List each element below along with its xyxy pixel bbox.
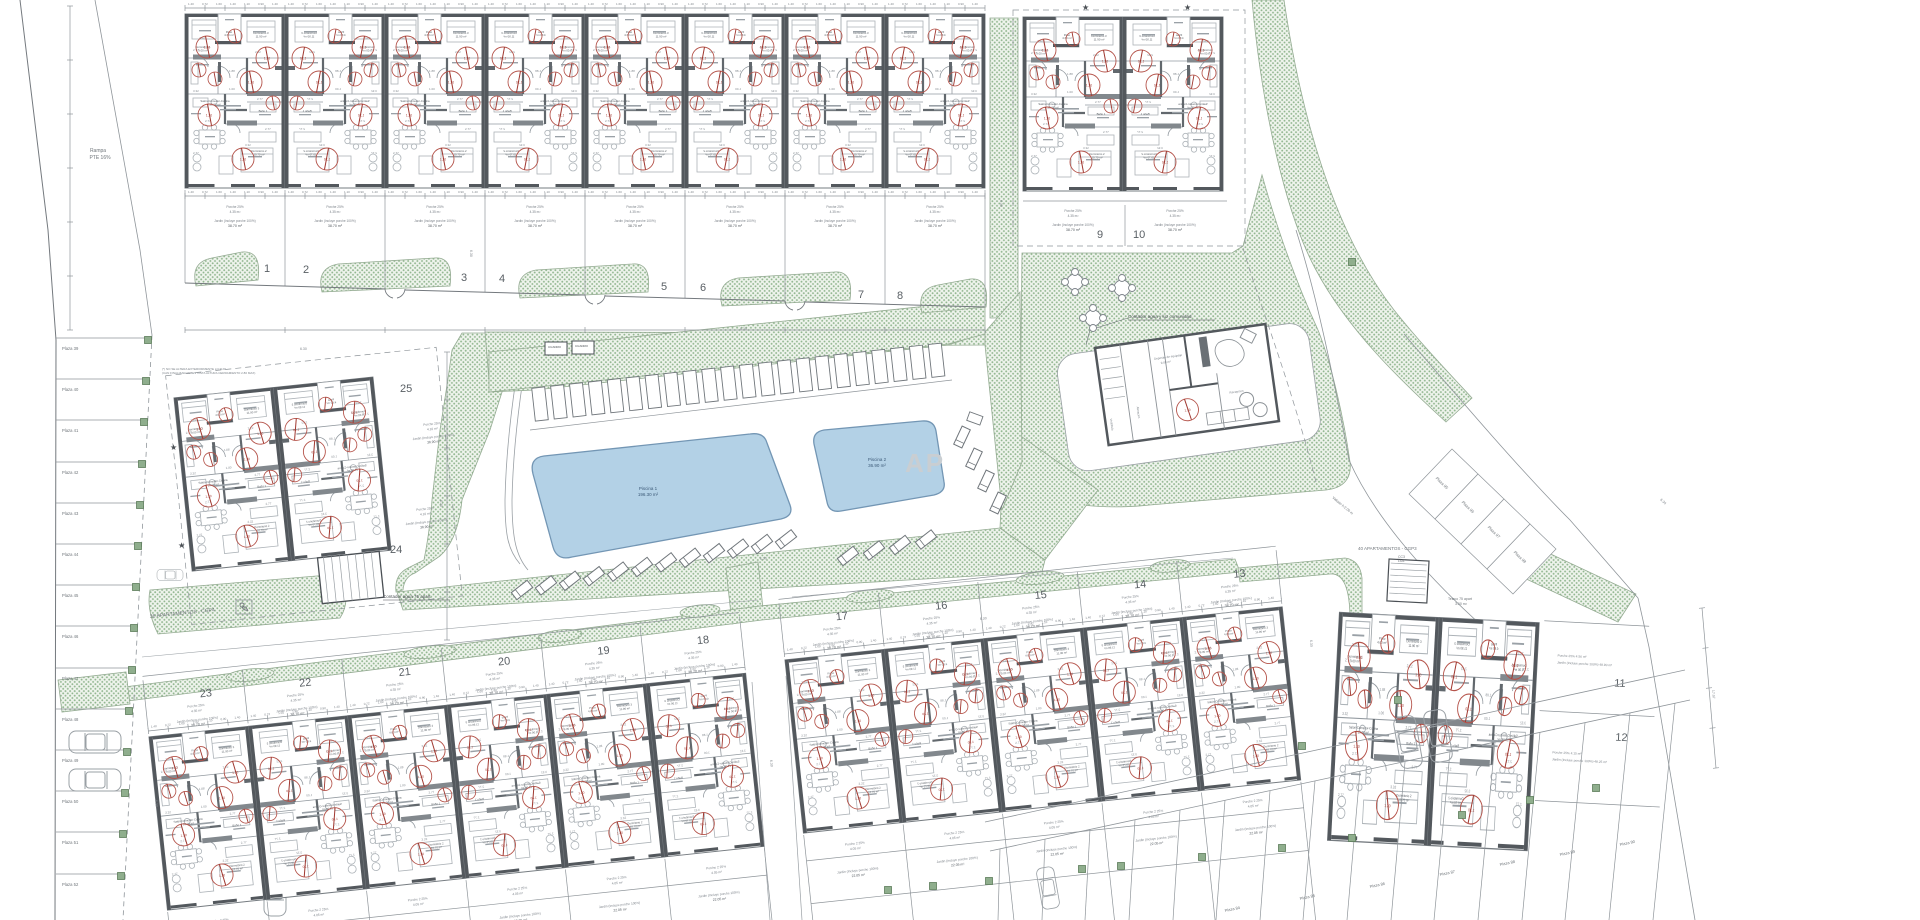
svg-text:CUADRO: CUADRO (575, 344, 589, 348)
svg-text:4: 4 (499, 273, 505, 285)
svg-text:40 APARTAMENTOS - CGP3: 40 APARTAMENTOS - CGP3 (1358, 546, 1417, 551)
svg-text:Plaza 52: Plaza 52 (62, 882, 79, 887)
svg-text:Plaza 50: Plaza 50 (62, 799, 79, 804)
svg-text:CUADRO: CUADRO (548, 345, 562, 349)
svg-text:Piscina 2: Piscina 2 (868, 457, 887, 462)
svg-text:3: 3 (461, 272, 467, 284)
svg-text:10: 10 (1133, 229, 1145, 241)
svg-text:★: ★ (178, 541, 185, 550)
svg-text:Plaza 47: Plaza 47 (62, 676, 79, 681)
svg-text:15: 15 (1034, 589, 1047, 602)
svg-text:6.30: 6.30 (769, 760, 774, 767)
svg-text:6.30: 6.30 (439, 500, 443, 507)
svg-text:6.30: 6.30 (154, 800, 159, 807)
svg-text:6.30: 6.30 (300, 347, 307, 351)
svg-text:2: 2 (303, 264, 309, 276)
svg-text:Plaza 43: Plaza 43 (62, 511, 79, 516)
svg-text:Plaza 46: Plaza 46 (62, 634, 79, 639)
svg-text:7: 7 (858, 289, 864, 301)
svg-text:24: 24 (390, 544, 402, 556)
svg-text:8: 8 (897, 290, 903, 302)
svg-text:22: 22 (299, 676, 312, 689)
svg-text:(CAN FINALIZAR ANTES VISTA ALT: (CAN FINALIZAR ANTES VISTA ALTURA CERRAM… (162, 371, 255, 375)
svg-text:14: 14 (1133, 578, 1146, 591)
svg-text:Plaza 42: Plaza 42 (62, 470, 79, 475)
svg-text:18: 18 (696, 634, 709, 647)
svg-text:6: 6 (700, 282, 706, 294)
svg-text:5: 5 (661, 281, 667, 293)
svg-text:★: ★ (1082, 3, 1089, 12)
svg-text:Piscina 1: Piscina 1 (639, 486, 658, 491)
svg-text:6.30: 6.30 (469, 250, 473, 257)
svg-text:1: 1 (264, 263, 270, 275)
svg-text:3.00 m²: 3.00 m² (1455, 602, 1468, 606)
svg-text:21: 21 (398, 666, 411, 679)
svg-text:Teleco 75 apart: Teleco 75 apart (1448, 597, 1472, 601)
svg-text:Plaza 48: Plaza 48 (62, 717, 79, 722)
svg-text:Contador agua y luz comunidad: Contador agua y luz comunidad (1128, 314, 1192, 319)
svg-text:12: 12 (1615, 732, 1628, 745)
svg-text:Plaza 40: Plaza 40 (62, 387, 79, 392)
svg-text:23: 23 (199, 687, 212, 700)
svg-text:13: 13 (1233, 568, 1246, 581)
svg-text:AP: AP (905, 448, 945, 478)
svg-text:Plaza 44: Plaza 44 (62, 552, 79, 557)
svg-text:Plaza 51: Plaza 51 (62, 840, 79, 845)
svg-text:9: 9 (1097, 229, 1103, 241)
svg-text:36.90 m²: 36.90 m² (868, 463, 886, 468)
svg-text:★: ★ (1184, 3, 1191, 12)
svg-text:Plaza 49: Plaza 49 (62, 758, 79, 763)
svg-text:6.30: 6.30 (740, 327, 747, 331)
svg-text:Plaza 39: Plaza 39 (62, 346, 79, 351)
svg-text:PTE 16%: PTE 16% (89, 155, 111, 161)
svg-text:6.30: 6.30 (980, 616, 987, 621)
svg-text:25: 25 (400, 383, 412, 395)
svg-text:6.30: 6.30 (760, 556, 767, 561)
svg-text:6.30: 6.30 (1309, 640, 1313, 647)
svg-text:196.30 m²: 196.30 m² (638, 492, 659, 497)
svg-text:19: 19 (597, 645, 610, 658)
svg-text:6.30: 6.30 (999, 200, 1003, 207)
svg-text:20: 20 (497, 655, 510, 668)
svg-text:Contador agua 76 apart: Contador agua 76 apart (383, 594, 431, 599)
svg-text:Plaza 41: Plaza 41 (62, 428, 79, 433)
svg-text:Plaza 45: Plaza 45 (62, 593, 79, 598)
svg-text:★: ★ (170, 443, 177, 452)
svg-text:16: 16 (935, 599, 948, 612)
svg-text:17: 17 (835, 610, 848, 623)
svg-text:LUZ: LUZ (1398, 559, 1405, 563)
svg-text:17.07: 17.07 (1711, 690, 1716, 699)
svg-text:Rampa: Rampa (90, 148, 106, 154)
